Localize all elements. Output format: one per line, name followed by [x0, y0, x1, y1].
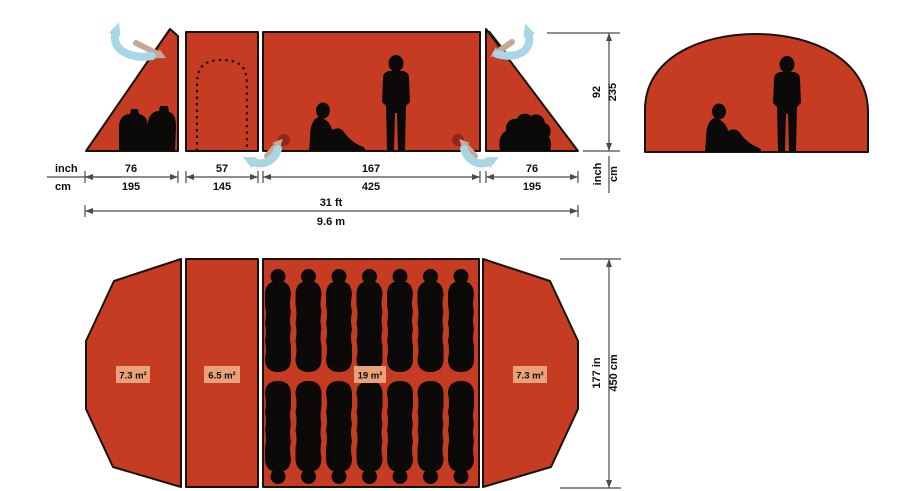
end-panel — [645, 34, 868, 152]
dimension-segment-3: 167 425 — [263, 163, 480, 193]
height-dimension: 92 235 inch cm — [547, 33, 620, 193]
unit-label-inch: inch — [55, 163, 78, 175]
main-panel — [263, 32, 480, 151]
floor-width-inch-value: 177 in — [591, 357, 603, 388]
dim-cm-value: 195 — [122, 181, 140, 193]
dim-cm-value: 425 — [362, 181, 380, 193]
area-value: 19 m² — [358, 371, 383, 382]
area-value: 6.5 m² — [208, 371, 235, 382]
tent-dimensions-diagram: inch cm 76 195 57 145 167 425 — [0, 0, 920, 491]
unit-label-cm: cm — [55, 181, 71, 193]
dimension-segment-4: 76 195 — [486, 163, 578, 193]
dim-cm-value: 145 — [213, 181, 231, 193]
dim-inch-value: 76 — [526, 163, 538, 175]
area-badge-main-section: 19 m² — [354, 366, 386, 383]
area-badge-left-vestibule: 7.3 m² — [116, 366, 150, 383]
floor-width-cm-value: 450 cm — [608, 354, 620, 392]
left-vestibule-panel — [86, 29, 178, 151]
side-elevation-view: inch cm 76 195 57 145 167 425 — [47, 29, 620, 228]
area-badge-door-section: 6.5 m² — [204, 366, 240, 383]
diagram-svg: inch cm 76 195 57 145 167 425 — [0, 0, 920, 491]
total-length-dimension: 31 ft 9.6 m — [85, 197, 578, 228]
area-badge-right-vestibule: 7.3 m² — [513, 366, 547, 383]
total-m-value: 9.6 m — [317, 216, 345, 228]
dim-cm-value: 195 — [523, 181, 541, 193]
dim-inch-value: 167 — [362, 163, 380, 175]
door-panel — [186, 32, 258, 151]
width-dimensions: inch cm 76 195 57 145 167 425 — [47, 163, 578, 228]
area-value: 7.3 m² — [119, 371, 146, 382]
end-elevation-view — [645, 34, 868, 152]
height-inch-value: 92 — [591, 86, 603, 98]
dim-inch-value: 57 — [216, 163, 228, 175]
floor-plan-view: 7.3 m² 6.5 m² 19 m² 7.3 m² 177 in 450 cm — [86, 259, 621, 488]
height-unit-cm: cm — [608, 166, 620, 182]
total-ft-value: 31 ft — [320, 197, 343, 209]
height-unit-inch: inch — [592, 162, 604, 185]
height-cm-value: 235 — [607, 83, 619, 101]
dimension-segment-1: 76 195 — [85, 163, 178, 193]
dim-inch-value: 76 — [125, 163, 137, 175]
dimension-segment-2: 57 145 — [186, 163, 258, 193]
area-value: 7.3 m² — [516, 371, 543, 382]
